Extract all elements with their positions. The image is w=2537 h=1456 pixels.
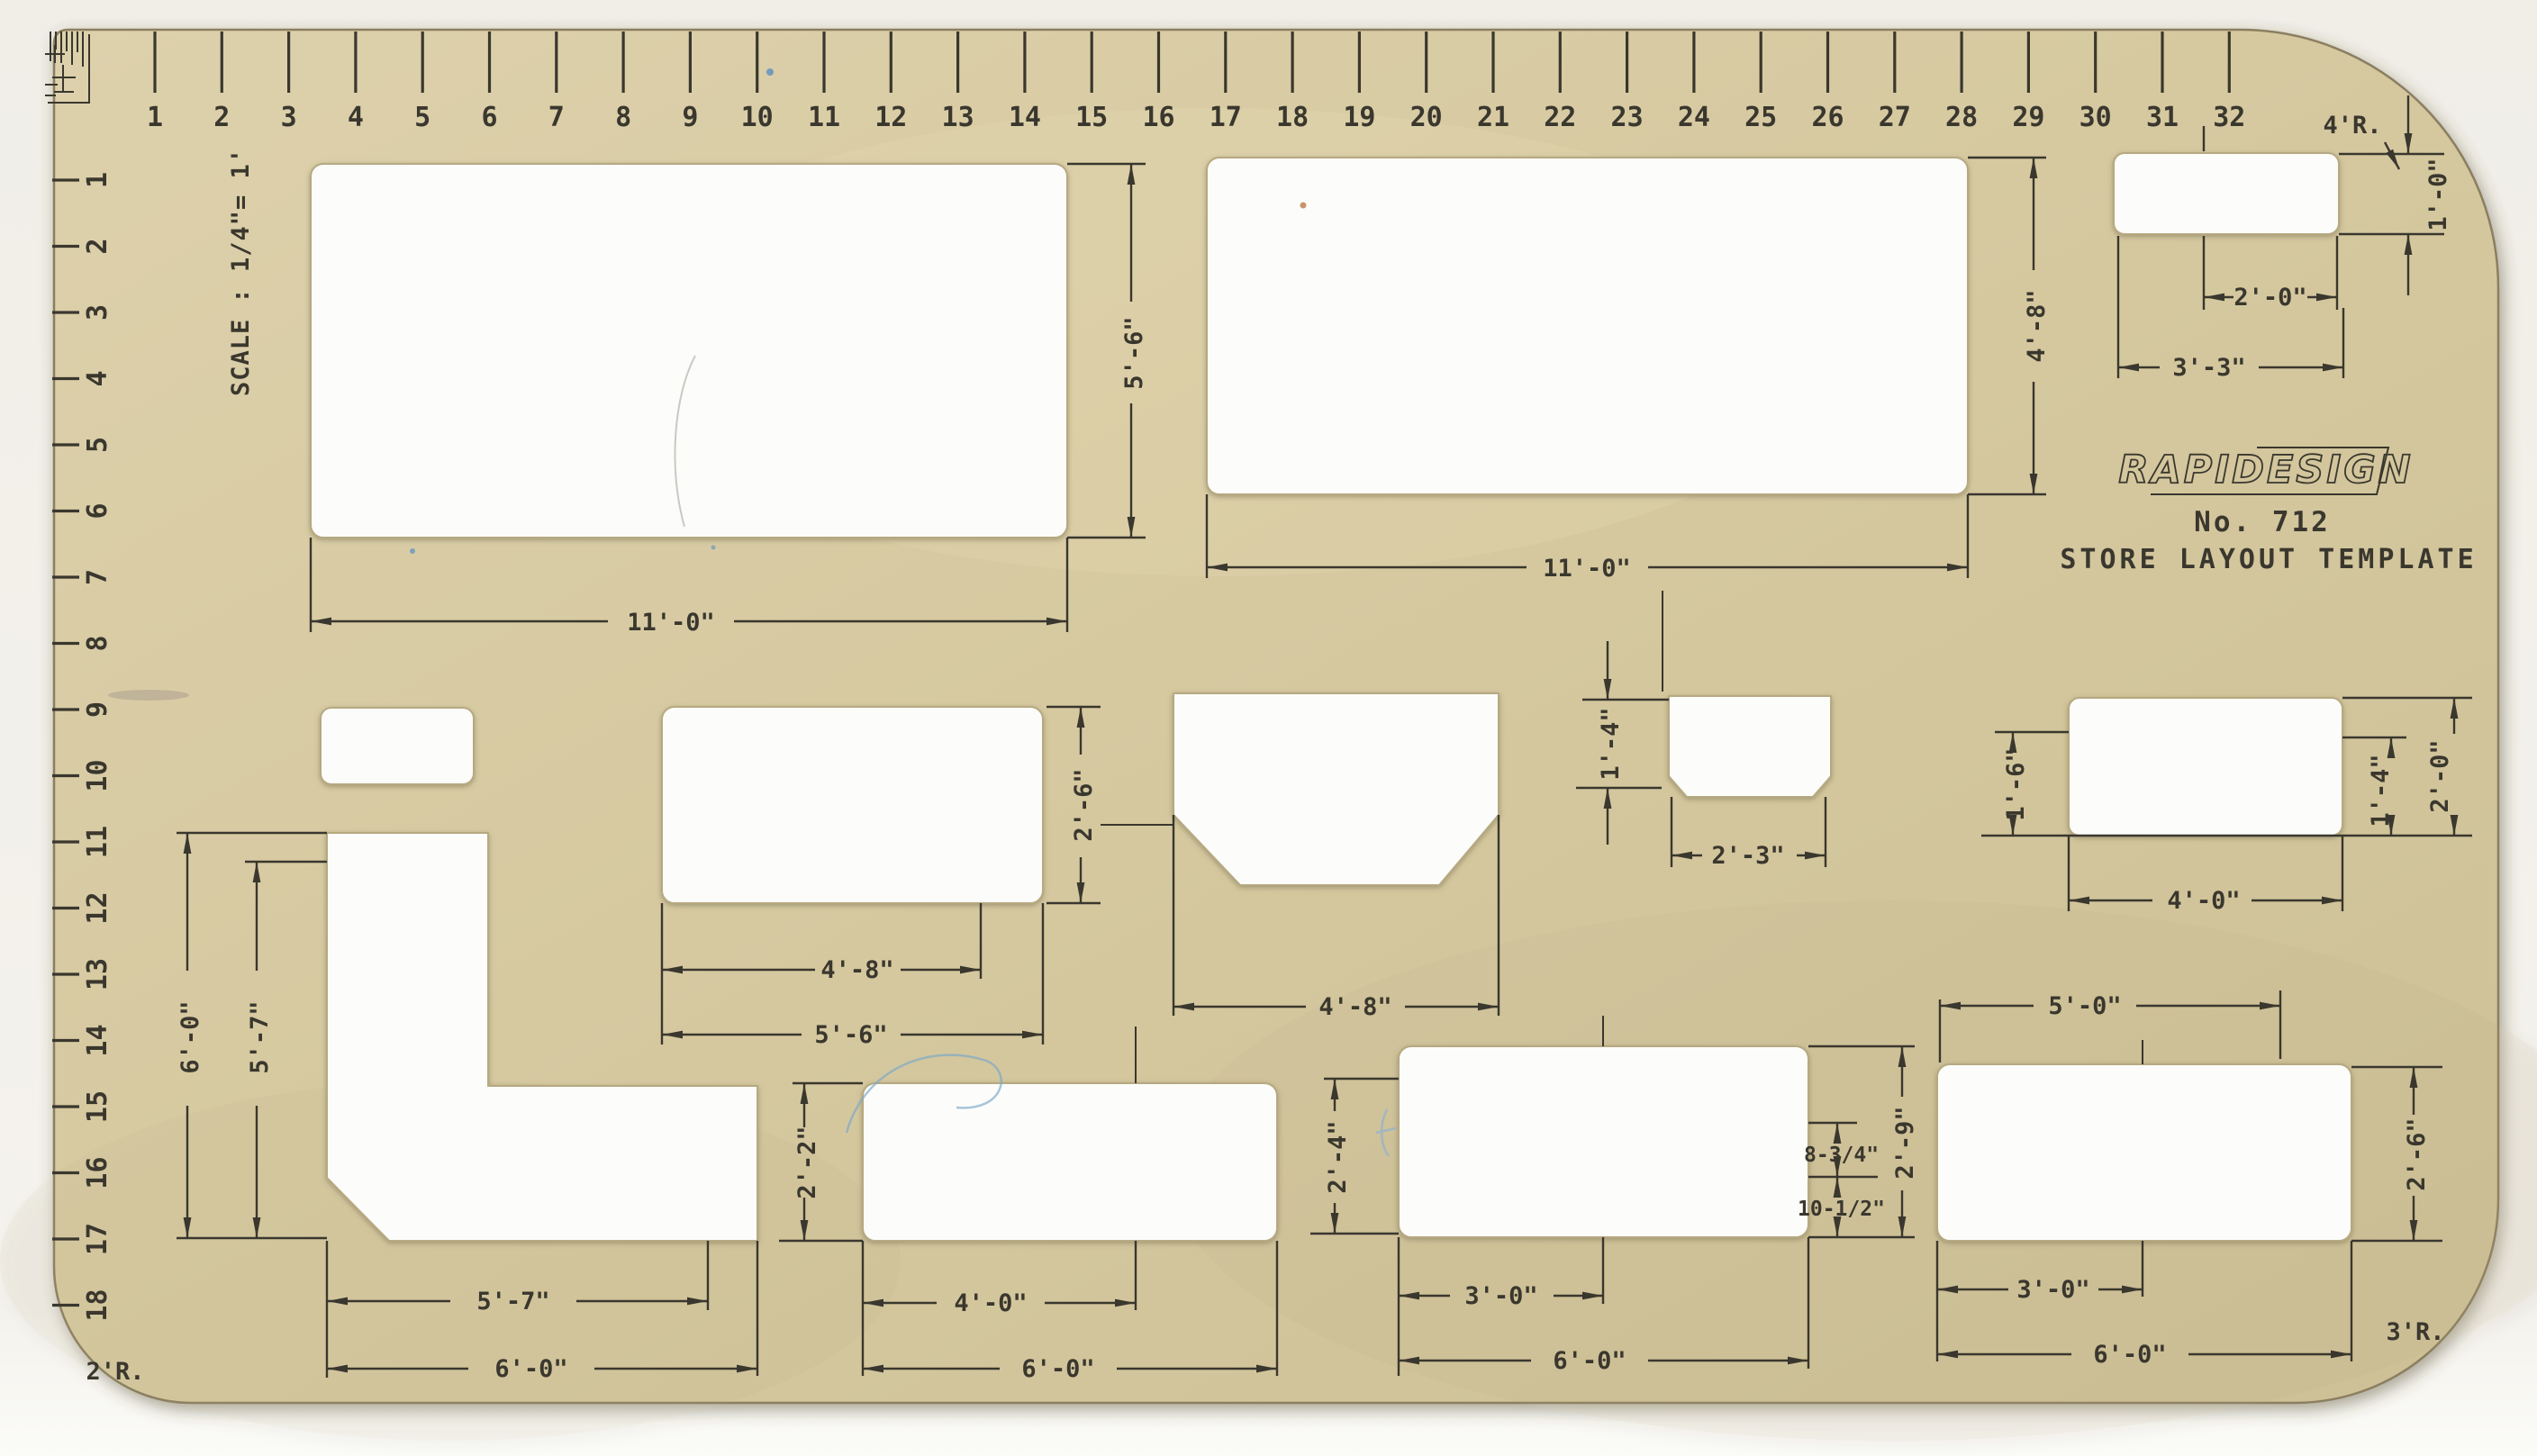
- dim-label: 4'-8": [2023, 289, 2051, 362]
- cutout-small-unlabeled-rect: [321, 708, 474, 784]
- dim-label: 5'-6": [1120, 316, 1148, 389]
- top-ruler-number: 10: [741, 102, 774, 133]
- dim-label: 4'-0": [954, 1289, 1027, 1317]
- top-ruler-number: 23: [1611, 102, 1644, 133]
- left-ruler-number: 8: [82, 635, 113, 651]
- dim-label: 11'-0": [627, 609, 715, 637]
- top-ruler-number: 31: [2146, 102, 2179, 133]
- top-ruler-number: 9: [682, 102, 698, 133]
- left-ruler-number: 7: [82, 569, 113, 585]
- top-ruler-number: 30: [2079, 102, 2112, 133]
- dim-label: 1'-4": [1597, 707, 1625, 780]
- blue-speck: [766, 68, 774, 76]
- cutout-large-rect-2: [1207, 158, 1968, 494]
- left-ruler-number: 9: [82, 701, 113, 718]
- top-ruler-number: 3: [281, 102, 297, 133]
- top-ruler-number: 5: [414, 102, 430, 133]
- corner-radius-label-bottom-right: 3'R.: [2386, 1318, 2444, 1346]
- brand-logo: RAPIDESIGN: [2118, 448, 2413, 493]
- dim-label: 2'-9": [1891, 1106, 1919, 1179]
- dim-label: 10-1/2": [1798, 1198, 1885, 1221]
- top-ruler-number: 1: [147, 102, 163, 133]
- dim-label: 4'-0": [2167, 887, 2240, 915]
- dim-label: 5'-7": [476, 1288, 549, 1316]
- top-ruler-number: 19: [1343, 102, 1375, 133]
- blue-speck: [711, 546, 716, 550]
- dim-label: 6'-0": [2093, 1341, 2166, 1369]
- top-ruler-number: 25: [1744, 102, 1777, 133]
- dim-label: 1'-4": [2367, 754, 2395, 827]
- dim-label: 2'-0": [2426, 739, 2454, 812]
- cutout-large-rect-1: [311, 164, 1067, 538]
- dim-label: 3'-0": [2016, 1276, 2089, 1304]
- left-ruler-number: 4: [82, 370, 113, 386]
- top-ruler-number: 13: [942, 102, 974, 133]
- dim-label: 2'-6": [1070, 768, 1098, 841]
- left-ruler-number: 15: [82, 1090, 113, 1123]
- dim-label: 2'-4": [1324, 1120, 1352, 1193]
- top-ruler-number: 26: [1811, 102, 1844, 133]
- top-ruler-number: 22: [1544, 102, 1576, 133]
- left-ruler-number: 13: [82, 958, 113, 990]
- top-ruler-number: 15: [1075, 102, 1108, 133]
- top-ruler-number: 11: [808, 102, 840, 133]
- top-ruler-number: 21: [1477, 102, 1509, 133]
- smudge-mark: [108, 690, 189, 701]
- cutout-chamfered-tub: [1173, 693, 1499, 885]
- blue-speck: [410, 548, 415, 554]
- top-ruler-number: 18: [1276, 102, 1309, 133]
- left-ruler-number: 11: [82, 826, 113, 858]
- top-ruler-number: 12: [874, 102, 907, 133]
- top-ruler-number: 14: [1009, 102, 1041, 133]
- dim-label: 6'-0": [177, 1000, 204, 1073]
- left-ruler-number: 18: [82, 1289, 113, 1321]
- top-ruler-number: 4: [348, 102, 364, 133]
- store-layout-template-scan: 1234567891011121314151617181920212223242…: [0, 0, 2537, 1456]
- left-ruler-number: 14: [82, 1024, 113, 1056]
- top-ruler-number: 20: [1410, 102, 1443, 133]
- dim-label: 2'-0": [2233, 284, 2306, 312]
- dim-label: 5'-6": [814, 1021, 887, 1049]
- left-ruler-number: 1: [82, 172, 113, 188]
- cutout-bottom-rect-2: [1399, 1046, 1808, 1237]
- dim-label: 11'-0": [1543, 555, 1631, 583]
- dim-label: 2'-2": [793, 1126, 821, 1198]
- top-ruler-number: 27: [1879, 102, 1911, 133]
- top-ruler-number: 28: [1945, 102, 1978, 133]
- cutout-right-mid-rect: [2069, 698, 2342, 836]
- cutout-small-rect-top-right: [2114, 153, 2339, 234]
- dim-label: 2'-3": [1711, 842, 1784, 870]
- left-ruler-number: 2: [82, 238, 113, 254]
- left-ruler-number: 16: [82, 1156, 113, 1189]
- left-ruler-number: 6: [82, 502, 113, 519]
- left-ruler-number: 5: [82, 437, 113, 453]
- scale-note: SCALE : 1/4"= 1': [227, 148, 255, 396]
- left-ruler-number: 17: [82, 1223, 113, 1255]
- dim-label: 1'-6": [2002, 747, 2030, 820]
- dim-label: 6'-0": [1553, 1347, 1626, 1375]
- corner-radius-label-bottom-left: 2'R.: [86, 1358, 144, 1386]
- dim-label: 4'-8": [1318, 993, 1391, 1021]
- dim-label: 3'-0": [1464, 1282, 1537, 1310]
- dim-label: 3'-3": [2172, 354, 2245, 382]
- top-ruler-number: 16: [1142, 102, 1174, 133]
- top-ruler-number: 29: [2012, 102, 2044, 133]
- dim-label: 4'-8": [820, 956, 893, 984]
- dim-label: 8-3/4": [1804, 1144, 1879, 1167]
- cutout-bottom-rect-1: [863, 1083, 1277, 1241]
- top-ruler-number: 6: [481, 102, 497, 133]
- dim-label: 6'-0": [494, 1355, 567, 1383]
- dim-label: 1'-0": [2424, 158, 2452, 231]
- left-ruler-number: 3: [82, 304, 113, 321]
- brand-name: STORE LAYOUT TEMPLATE: [2060, 544, 2477, 575]
- rust-speck: [1300, 203, 1307, 209]
- dim-label: 5'-7": [246, 1000, 274, 1073]
- dim-label: 5'-0": [2048, 992, 2121, 1020]
- top-ruler-number: 24: [1678, 102, 1710, 133]
- corner-radius-label: 4'R.: [2323, 112, 2381, 140]
- cutout-mid-rect: [662, 707, 1043, 903]
- dim-label: 6'-0": [1021, 1355, 1094, 1383]
- scan-page: 1234567891011121314151617181920212223242…: [0, 0, 2537, 1456]
- top-ruler-number: 32: [2213, 102, 2245, 133]
- brand-model: No. 712: [2194, 506, 2331, 538]
- dim-label: 2'-6": [2403, 1117, 2431, 1190]
- cutout-small-chamfered-tub: [1669, 696, 1831, 797]
- top-ruler-number: 17: [1210, 102, 1242, 133]
- left-ruler-number: 10: [82, 759, 113, 791]
- top-ruler-number: 8: [615, 102, 631, 133]
- left-ruler-number: 12: [82, 891, 113, 924]
- cutout-bottom-rect-3: [1937, 1064, 2351, 1241]
- top-ruler-number: 7: [548, 102, 565, 133]
- top-ruler-number: 2: [213, 102, 230, 133]
